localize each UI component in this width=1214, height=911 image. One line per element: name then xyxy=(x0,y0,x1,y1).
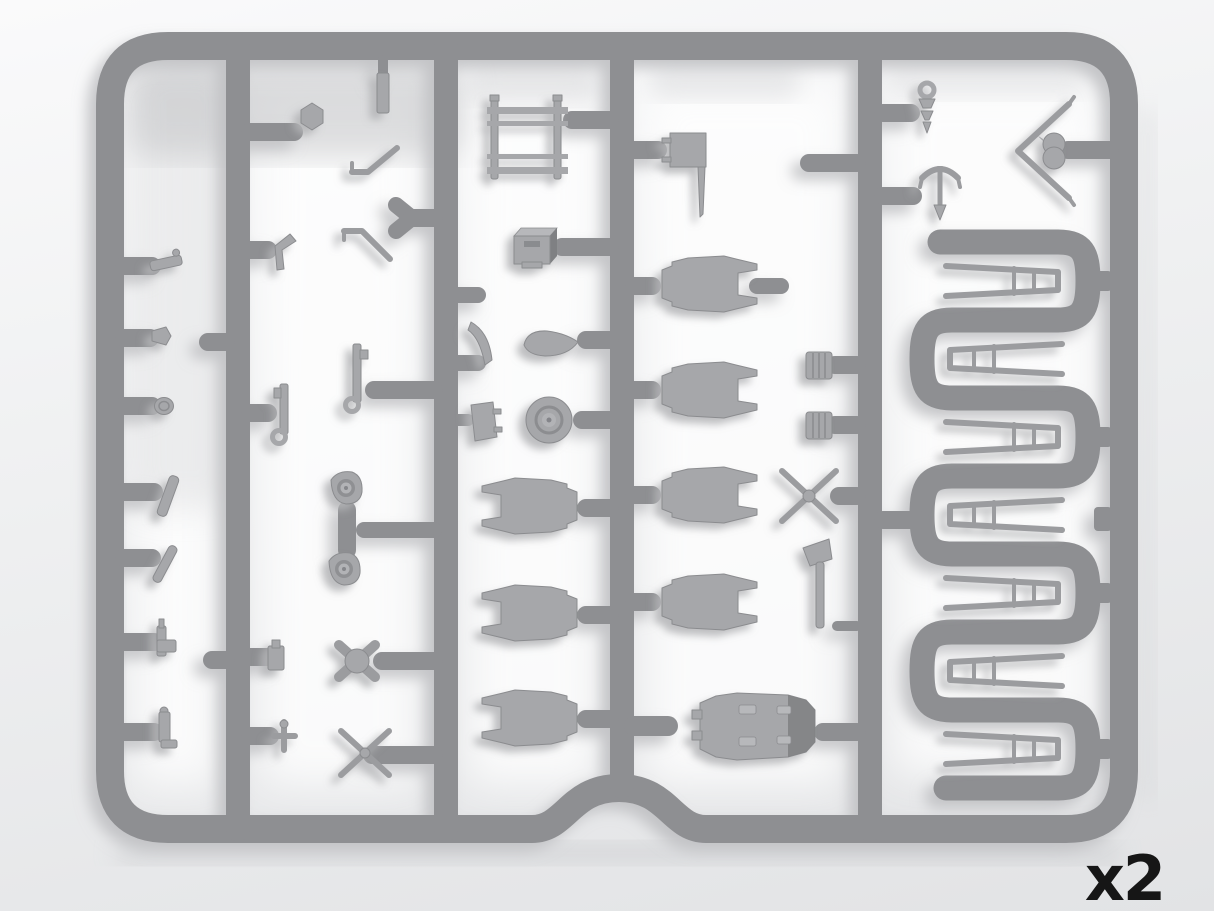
part-mast-bar xyxy=(377,73,389,113)
sprue-illustration: x2 xyxy=(0,0,1214,911)
part-barrel-b xyxy=(806,412,832,439)
part-ammo-box xyxy=(514,228,557,268)
sprue-render-page: x2 xyxy=(0,0,1214,911)
part-barrel-a xyxy=(806,352,832,379)
part-wheel xyxy=(526,397,572,443)
quantity-label: x2 xyxy=(1085,842,1164,911)
part-engine-block xyxy=(692,693,815,760)
part-disc-small xyxy=(155,398,174,415)
